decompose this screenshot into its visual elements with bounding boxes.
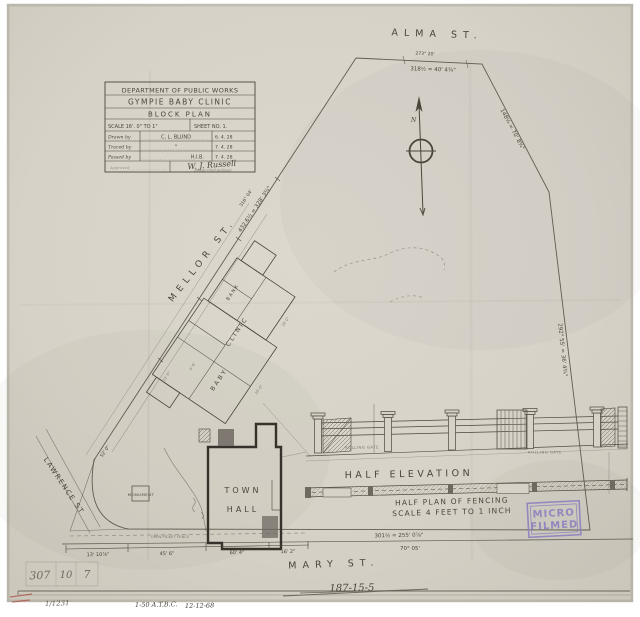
department-title: DEPARTMENT OF PUBLIC WORKS — [122, 87, 239, 95]
town-hall-outbuilding — [199, 429, 210, 442]
drawn-by-label: Drawn by — [107, 135, 131, 141]
scale-label: SCALE 16'. 0" TO 1" — [108, 124, 158, 130]
signature-title: Deputy Chief Architect — [193, 169, 232, 173]
gate-panel-right — [601, 408, 615, 447]
town-hall-label-2: HALL — [227, 505, 259, 514]
plan-gate-opening — [323, 488, 351, 497]
plan-title: BLOCK PLAN — [148, 111, 212, 119]
corner-post-detail — [618, 407, 627, 448]
mary-dim-1: 13' 10⅞" — [87, 552, 110, 558]
mary-dim-2: 45' 6" — [160, 551, 175, 557]
plan-post — [532, 482, 537, 492]
project-title: GYMPIE BABY CLINIC — [128, 98, 232, 107]
plan-post — [368, 486, 373, 496]
file-number-note: 1/1231 — [45, 599, 70, 608]
traced-by-label: Traced by — [108, 145, 132, 151]
mary-frontage-dim: 301½ = 255' 0⅞" — [374, 532, 423, 540]
sheet-label: SHEET NO. 1. — [194, 124, 228, 130]
drawing-svg: DEPARTMENT OF PUBLIC WORKS GYMPIE BABY C… — [0, 0, 640, 617]
north-label: N — [410, 117, 417, 124]
mary-dim-4: 16' 2" — [281, 549, 296, 555]
fence-note: OPEN PICKET FENCE — [151, 534, 190, 539]
passed-by-label: Passed by — [107, 155, 131, 161]
plan-gate-opening — [497, 484, 529, 494]
batch-note: 1-50 A.T.B.C. — [135, 600, 178, 609]
mary-dim-3: 60' 4" — [230, 550, 245, 556]
town-hall-rear-fill — [262, 516, 278, 538]
alma-bearing: 273° 20' — [415, 51, 434, 58]
stamp-line-1: MICRO — [532, 507, 575, 520]
monument-label: MONUMENT — [128, 492, 155, 497]
traced-by-date: 7. 4. 28 — [215, 145, 233, 151]
ledger-entry-3: 7 — [84, 568, 91, 581]
rolling-gate-label: ROLLING GATE — [528, 450, 562, 455]
rolling-gate-label: ROLLING GATE — [345, 444, 379, 450]
date-note: 12-12-68 — [185, 601, 214, 610]
plan-post — [448, 484, 453, 494]
town-hall-annex-fill — [218, 429, 234, 446]
drawn-by-date: 6. 4. 28 — [215, 135, 233, 141]
rolling-gate-panel — [497, 410, 527, 449]
plan-post — [610, 480, 615, 490]
half-elevation-title: HALF ELEVATION — [345, 468, 474, 481]
passed-by-value: H.I.B. — [191, 155, 205, 161]
scanned-drawing-page: DEPARTMENT OF PUBLIC WORKS GYMPIE BABY C… — [0, 0, 640, 617]
ledger-entry-2: 10 — [60, 570, 73, 581]
ledger-entry-1: 307 — [29, 569, 50, 583]
approved-label: Approved — [109, 165, 130, 170]
plan-post — [305, 487, 311, 498]
mary-bearing: 70° 05' — [400, 546, 420, 552]
town-hall-label-1: TOWN — [223, 486, 261, 495]
